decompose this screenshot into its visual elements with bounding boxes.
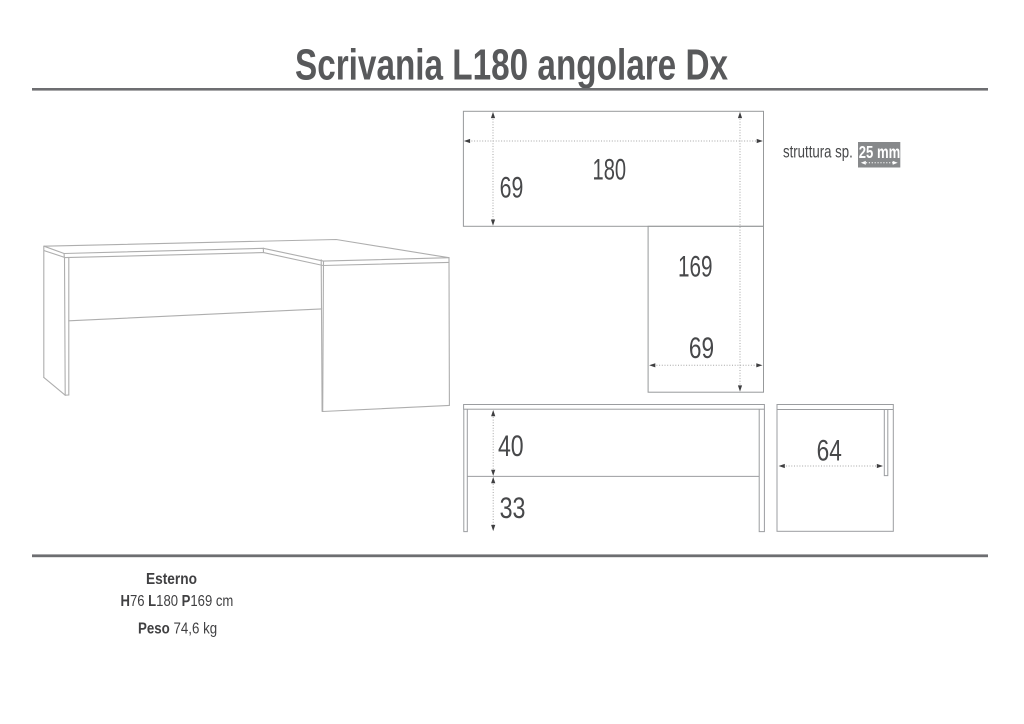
svg-text:Scrivania L180 angolare Dx: Scrivania L180 angolare Dx [295, 42, 728, 90]
svg-text:40: 40 [498, 429, 524, 463]
svg-text:169: 169 [678, 251, 713, 284]
svg-text:Esterno: Esterno [146, 571, 197, 588]
svg-text:180: 180 [593, 153, 627, 186]
svg-text:struttura sp.: struttura sp. [783, 143, 853, 162]
svg-text:H76 L180 P169 cm: H76 L180 P169 cm [121, 593, 234, 611]
svg-text:64: 64 [817, 433, 842, 467]
svg-text:25 mm: 25 mm [859, 143, 900, 162]
svg-text:69: 69 [689, 331, 714, 365]
svg-text:69: 69 [500, 170, 524, 205]
svg-text:33: 33 [500, 491, 526, 525]
svg-text:Peso 74,6 kg: Peso 74,6 kg [138, 621, 217, 638]
